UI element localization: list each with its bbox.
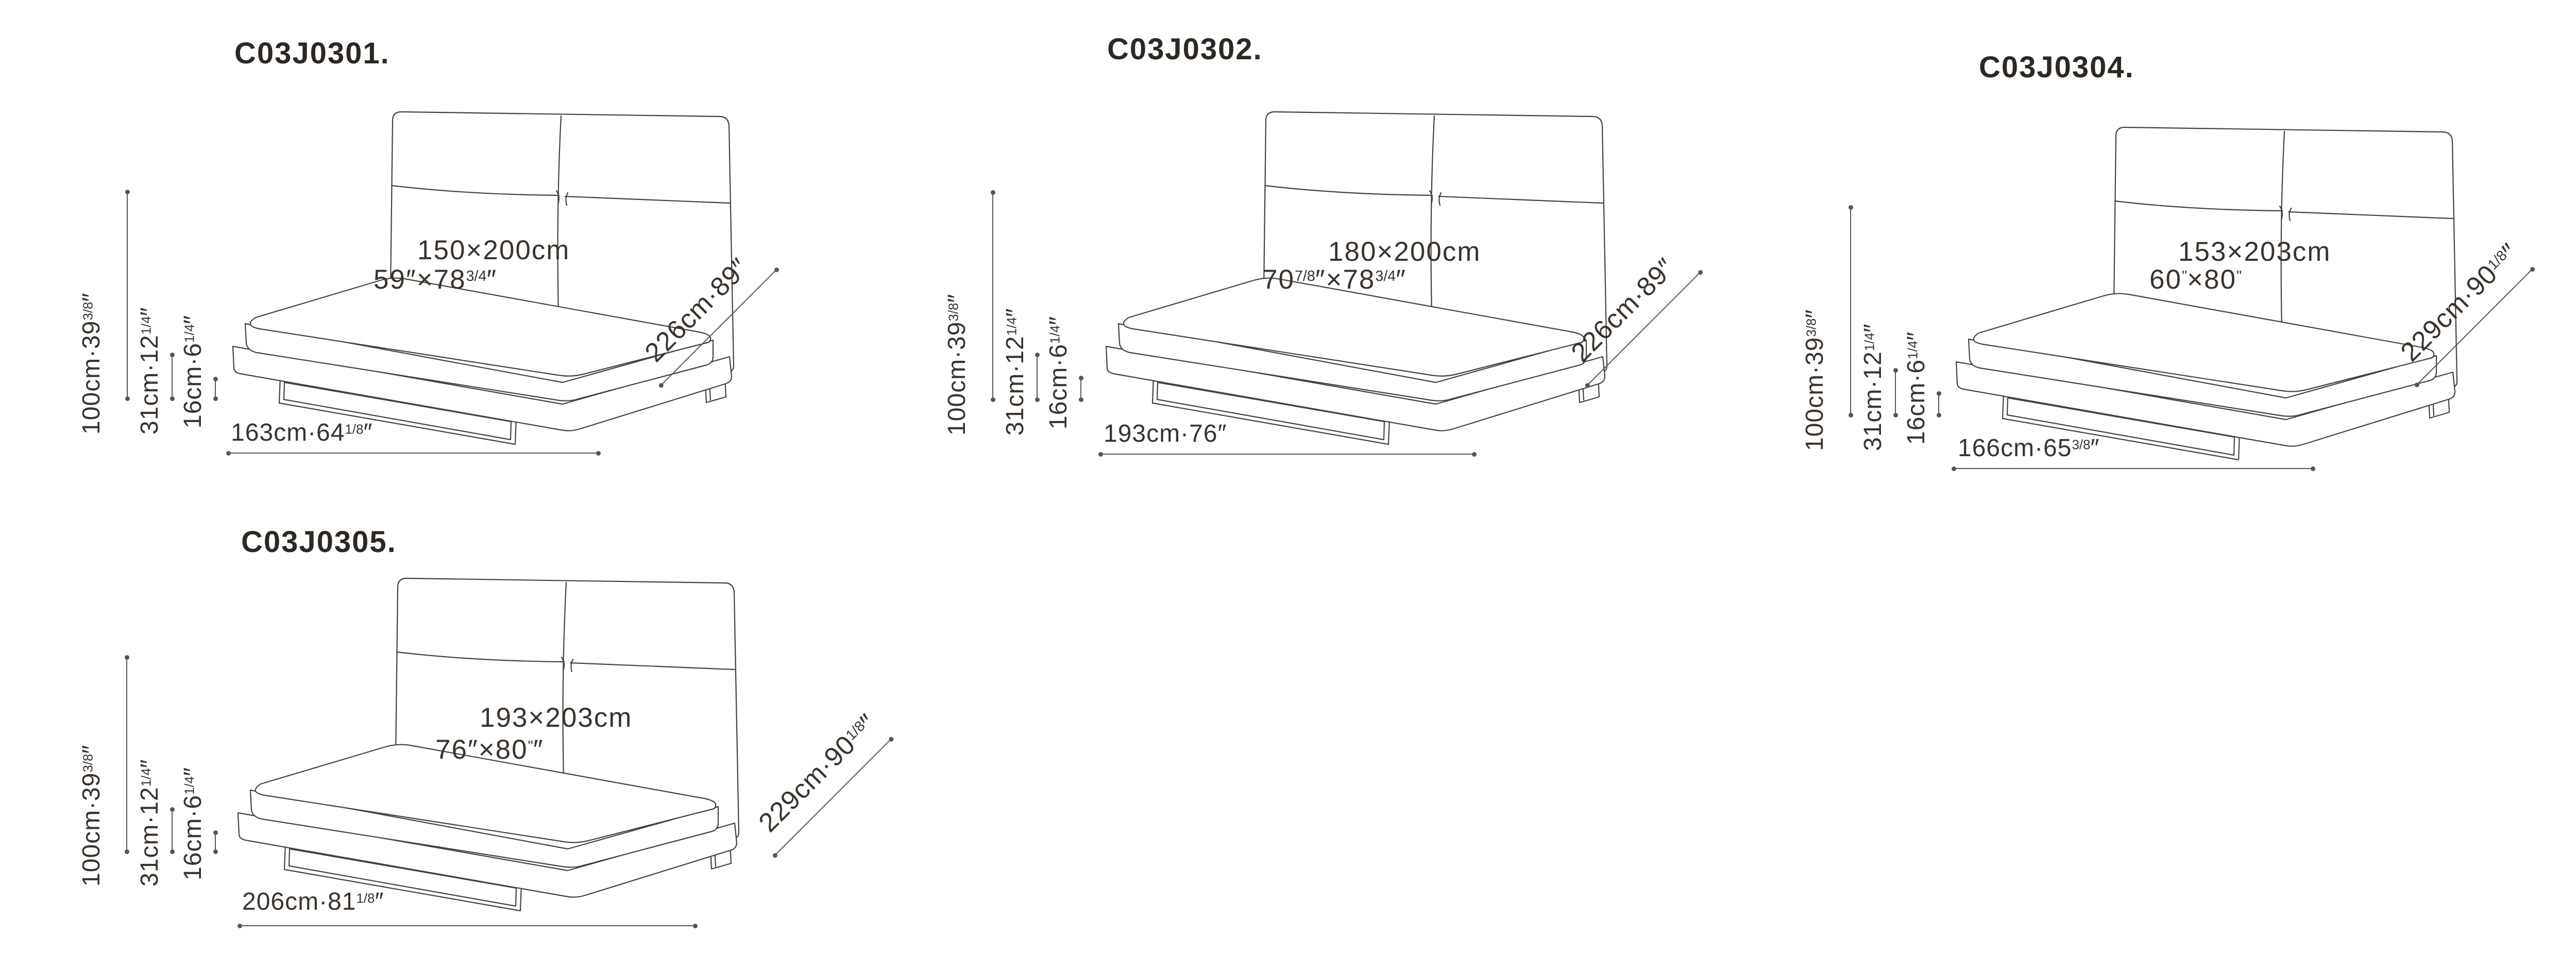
height-dim-label: 100cm·393/8″ (1801, 309, 1829, 451)
frame-height-dim-line (1037, 355, 1038, 400)
mattress-size-inch: 59″×783/4″ (374, 264, 497, 295)
frame-height-dim-line (1895, 370, 1896, 415)
height-dim-label: 100cm·393/8″ (943, 294, 971, 436)
frame-height-dim-label: 31cm·121/4″ (135, 307, 164, 435)
base-height-dim-line (215, 379, 216, 399)
frame-height-dim-line (172, 809, 173, 852)
mattress-size-inch: 60"×80" (2149, 264, 2242, 295)
width-dim-line (228, 453, 599, 454)
width-dim-label: 163cm·641/8″ (231, 419, 372, 447)
model-title: C03J0301. (234, 36, 390, 71)
model-title: C03J0304. (1979, 50, 2134, 85)
mattress-size-inch: 76″×80"″ (435, 734, 544, 765)
height-dim-line (1850, 207, 1851, 415)
mattress-size-inch: 707/8″×783/4″ (1262, 264, 1406, 295)
model-title: C03J0302. (1107, 32, 1263, 66)
mattress-size-cm: 180×200cm (1328, 236, 1481, 268)
width-dim-label: 206cm·811/8″ (242, 888, 384, 916)
width-dim-line (1100, 454, 1475, 455)
height-dim-line (127, 192, 128, 399)
frame-height-dim-label: 31cm·121/4″ (135, 759, 164, 887)
bed-spec-sheet: { "page": { "background": "#ffffff", "li… (0, 0, 2576, 969)
width-dim-line (1954, 468, 2313, 469)
frame-height-dim-label: 31cm·121/4″ (1001, 308, 1029, 436)
width-dim-label: 166cm·653/8″ (1958, 434, 2099, 462)
base-height-dim-label: 16cm·61/4″ (179, 767, 207, 880)
base-height-dim-line (1938, 393, 1939, 415)
width-dim-label: 193cm·76″ (1104, 420, 1227, 448)
base-height-dim-label: 16cm·61/4″ (1902, 331, 1930, 445)
frame-height-dim-label: 31cm·121/4″ (1859, 323, 1887, 451)
base-height-dim-line (215, 832, 216, 852)
mattress-size-cm: 150×200cm (417, 235, 570, 266)
width-dim-line (240, 925, 696, 926)
frame-height-dim-line (172, 355, 173, 399)
base-height-dim-label: 16cm·61/4″ (1044, 316, 1073, 429)
mattress-size-cm: 193×203cm (480, 702, 632, 733)
depth-dim-label: 229cm·901/8″ (753, 708, 883, 838)
base-height-dim-line (1080, 378, 1081, 400)
height-dim-line (126, 657, 127, 852)
mattress-size-cm: 153×203cm (2178, 236, 2331, 268)
height-dim-line (992, 192, 993, 400)
height-dim-label: 100cm·393/8″ (77, 745, 106, 887)
base-height-dim-label: 16cm·61/4″ (179, 315, 207, 428)
height-dim-label: 100cm·393/8″ (77, 293, 106, 435)
